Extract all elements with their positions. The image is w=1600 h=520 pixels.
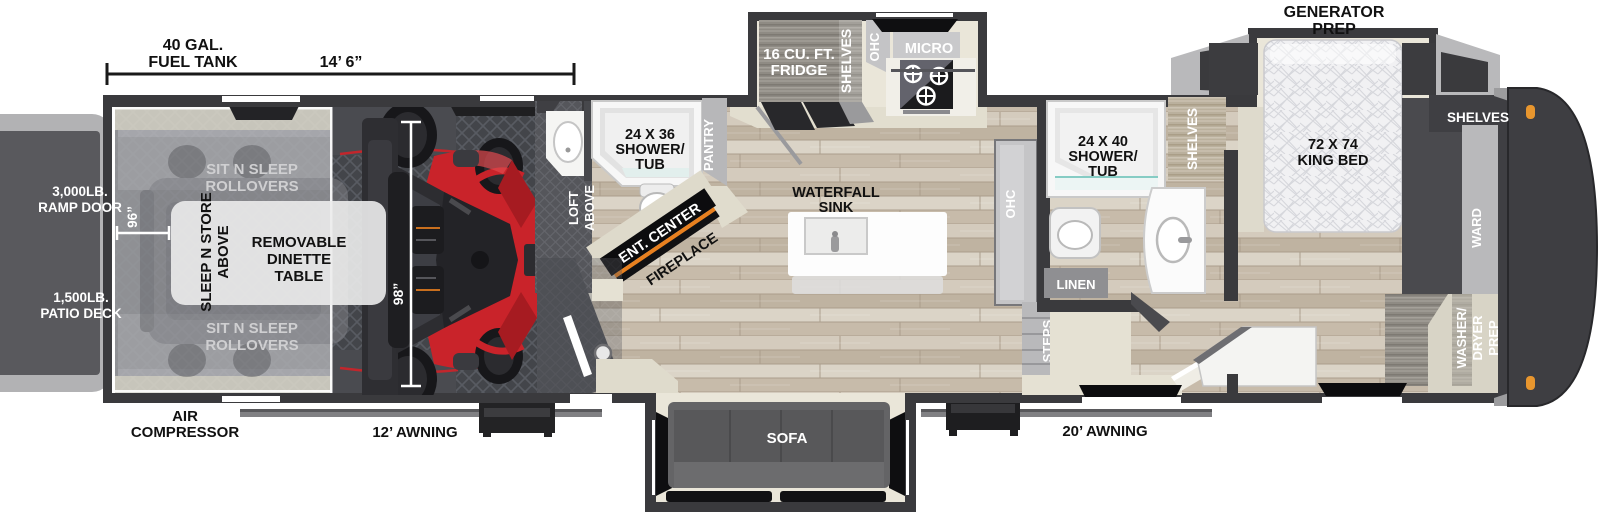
svg-text:40 GAL.: 40 GAL.: [163, 37, 223, 54]
svg-text:24 X 40: 24 X 40: [1078, 134, 1128, 150]
svg-text:SOFA: SOFA: [767, 430, 808, 447]
svg-text:PREP: PREP: [1312, 21, 1356, 38]
svg-text:WASHER/: WASHER/: [1454, 307, 1469, 368]
svg-text:WATERFALL: WATERFALL: [792, 185, 880, 201]
svg-text:FRIDGE: FRIDGE: [771, 62, 828, 79]
svg-text:16 CU. FT.: 16 CU. FT.: [763, 46, 835, 63]
svg-text:96”: 96”: [125, 206, 140, 228]
svg-text:SLEEP N STORE: SLEEP N STORE: [198, 192, 215, 311]
svg-text:SHOWER/: SHOWER/: [615, 142, 684, 158]
svg-text:TUB: TUB: [1088, 164, 1118, 180]
svg-text:ABOVE: ABOVE: [582, 185, 597, 232]
svg-text:1,500LB.: 1,500LB.: [53, 290, 109, 305]
svg-text:PREP: PREP: [1486, 320, 1501, 356]
svg-text:LINEN: LINEN: [1057, 277, 1096, 292]
svg-text:24 X 36: 24 X 36: [625, 127, 675, 143]
svg-text:PANTRY: PANTRY: [701, 119, 716, 171]
svg-text:20’ AWNING: 20’ AWNING: [1062, 423, 1147, 440]
svg-text:SIT N SLEEP: SIT N SLEEP: [206, 161, 298, 178]
svg-text:COMPRESSOR: COMPRESSOR: [131, 424, 240, 441]
svg-text:SINK: SINK: [819, 200, 854, 216]
svg-text:OHC: OHC: [1003, 189, 1018, 219]
svg-text:DINETTE: DINETTE: [267, 251, 331, 268]
svg-text:PATIO DECK: PATIO DECK: [40, 306, 122, 321]
svg-text:ABOVE: ABOVE: [215, 225, 232, 278]
svg-text:MICRO: MICRO: [905, 41, 953, 57]
svg-text:SHOWER/: SHOWER/: [1068, 149, 1137, 165]
svg-text:AIR: AIR: [172, 408, 198, 425]
svg-text:SHELVES: SHELVES: [1447, 110, 1509, 125]
svg-text:SIT N SLEEP: SIT N SLEEP: [206, 320, 298, 337]
svg-text:GENERATOR: GENERATOR: [1284, 4, 1385, 21]
svg-text:TUB: TUB: [635, 157, 665, 173]
svg-text:14’ 6”: 14’ 6”: [320, 54, 363, 71]
svg-text:3,000LB.: 3,000LB.: [52, 184, 108, 199]
svg-text:WARD: WARD: [1469, 208, 1484, 248]
svg-text:TABLE: TABLE: [275, 268, 324, 285]
svg-text:ROLLOVERS: ROLLOVERS: [205, 337, 298, 354]
svg-text:12’ AWNING: 12’ AWNING: [372, 424, 457, 441]
svg-text:98”: 98”: [390, 283, 406, 306]
svg-text:LOFT: LOFT: [566, 191, 581, 225]
svg-text:REMOVABLE: REMOVABLE: [252, 234, 347, 251]
svg-text:DRYER: DRYER: [1470, 315, 1485, 361]
svg-text:SHELVES: SHELVES: [838, 29, 854, 93]
svg-text:KING BED: KING BED: [1298, 153, 1369, 169]
svg-text:RAMP DOOR: RAMP DOOR: [38, 200, 122, 215]
svg-text:ROLLOVERS: ROLLOVERS: [205, 178, 298, 195]
svg-text:FUEL TANK: FUEL TANK: [148, 54, 238, 71]
svg-text:SHELVES: SHELVES: [1185, 108, 1200, 170]
svg-text:OHC: OHC: [867, 32, 882, 62]
svg-text:72 X 74: 72 X 74: [1308, 137, 1358, 153]
